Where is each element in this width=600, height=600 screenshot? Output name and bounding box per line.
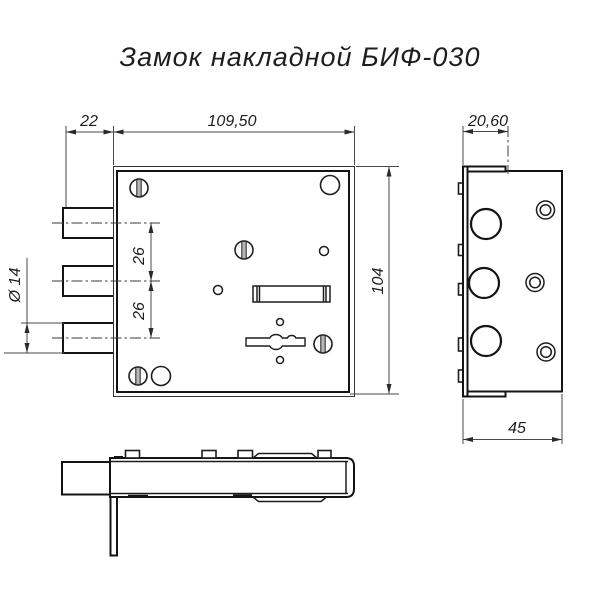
bolt-end xyxy=(471,326,501,356)
lock-technical-drawing: Замок накладной БИФ-030 xyxy=(0,0,600,600)
dimension-case-depth: 45 xyxy=(463,394,562,444)
front-view: 22 109,50 104 26 26 xyxy=(4,113,399,397)
bolt-side xyxy=(62,462,110,495)
dim-bolt-diameter: Ø 14 xyxy=(7,268,24,304)
screw-head-icon xyxy=(130,179,148,197)
dim-bolt-protrusion: 22 xyxy=(79,113,98,130)
side-view: 20,60 45 xyxy=(459,113,563,444)
screw-head-icon xyxy=(314,335,332,353)
drawing-sheet: Замок накладной БИФ-030 xyxy=(0,0,600,600)
face-plate-edge xyxy=(463,167,468,397)
bottom-view xyxy=(62,451,354,556)
dim-flange-offset: 20,60 xyxy=(467,113,508,130)
bolt-end xyxy=(471,209,501,239)
dim-body-height: 104 xyxy=(370,268,387,295)
dimension-bolt-diameter: Ø 14 xyxy=(4,258,64,353)
dim-case-depth: 45 xyxy=(508,420,526,437)
mount-tab xyxy=(318,451,331,459)
case-bottom-outline xyxy=(110,458,354,497)
face-plate-profile xyxy=(111,497,118,556)
screw-head-icon xyxy=(235,241,253,259)
hole-bottom-left xyxy=(152,367,171,386)
screw-head-icon xyxy=(129,367,147,385)
flange-lip-top xyxy=(463,167,506,172)
flange-lip-bottom xyxy=(463,392,506,397)
drawing-title: Замок накладной БИФ-030 xyxy=(120,42,481,72)
mount-tab xyxy=(238,451,253,459)
dim-bolt-pitch-top: 26 xyxy=(131,247,148,266)
mount-tab xyxy=(202,451,216,459)
mount-tab xyxy=(126,451,140,459)
dim-body-width: 109,50 xyxy=(208,113,257,130)
hole-top-right xyxy=(321,176,340,195)
dim-bolt-pitch-bottom: 26 xyxy=(131,302,148,321)
dimension-flange-offset: 20,60 xyxy=(463,113,508,174)
bolt-end xyxy=(469,268,499,298)
dimension-height: 104 xyxy=(350,167,399,395)
